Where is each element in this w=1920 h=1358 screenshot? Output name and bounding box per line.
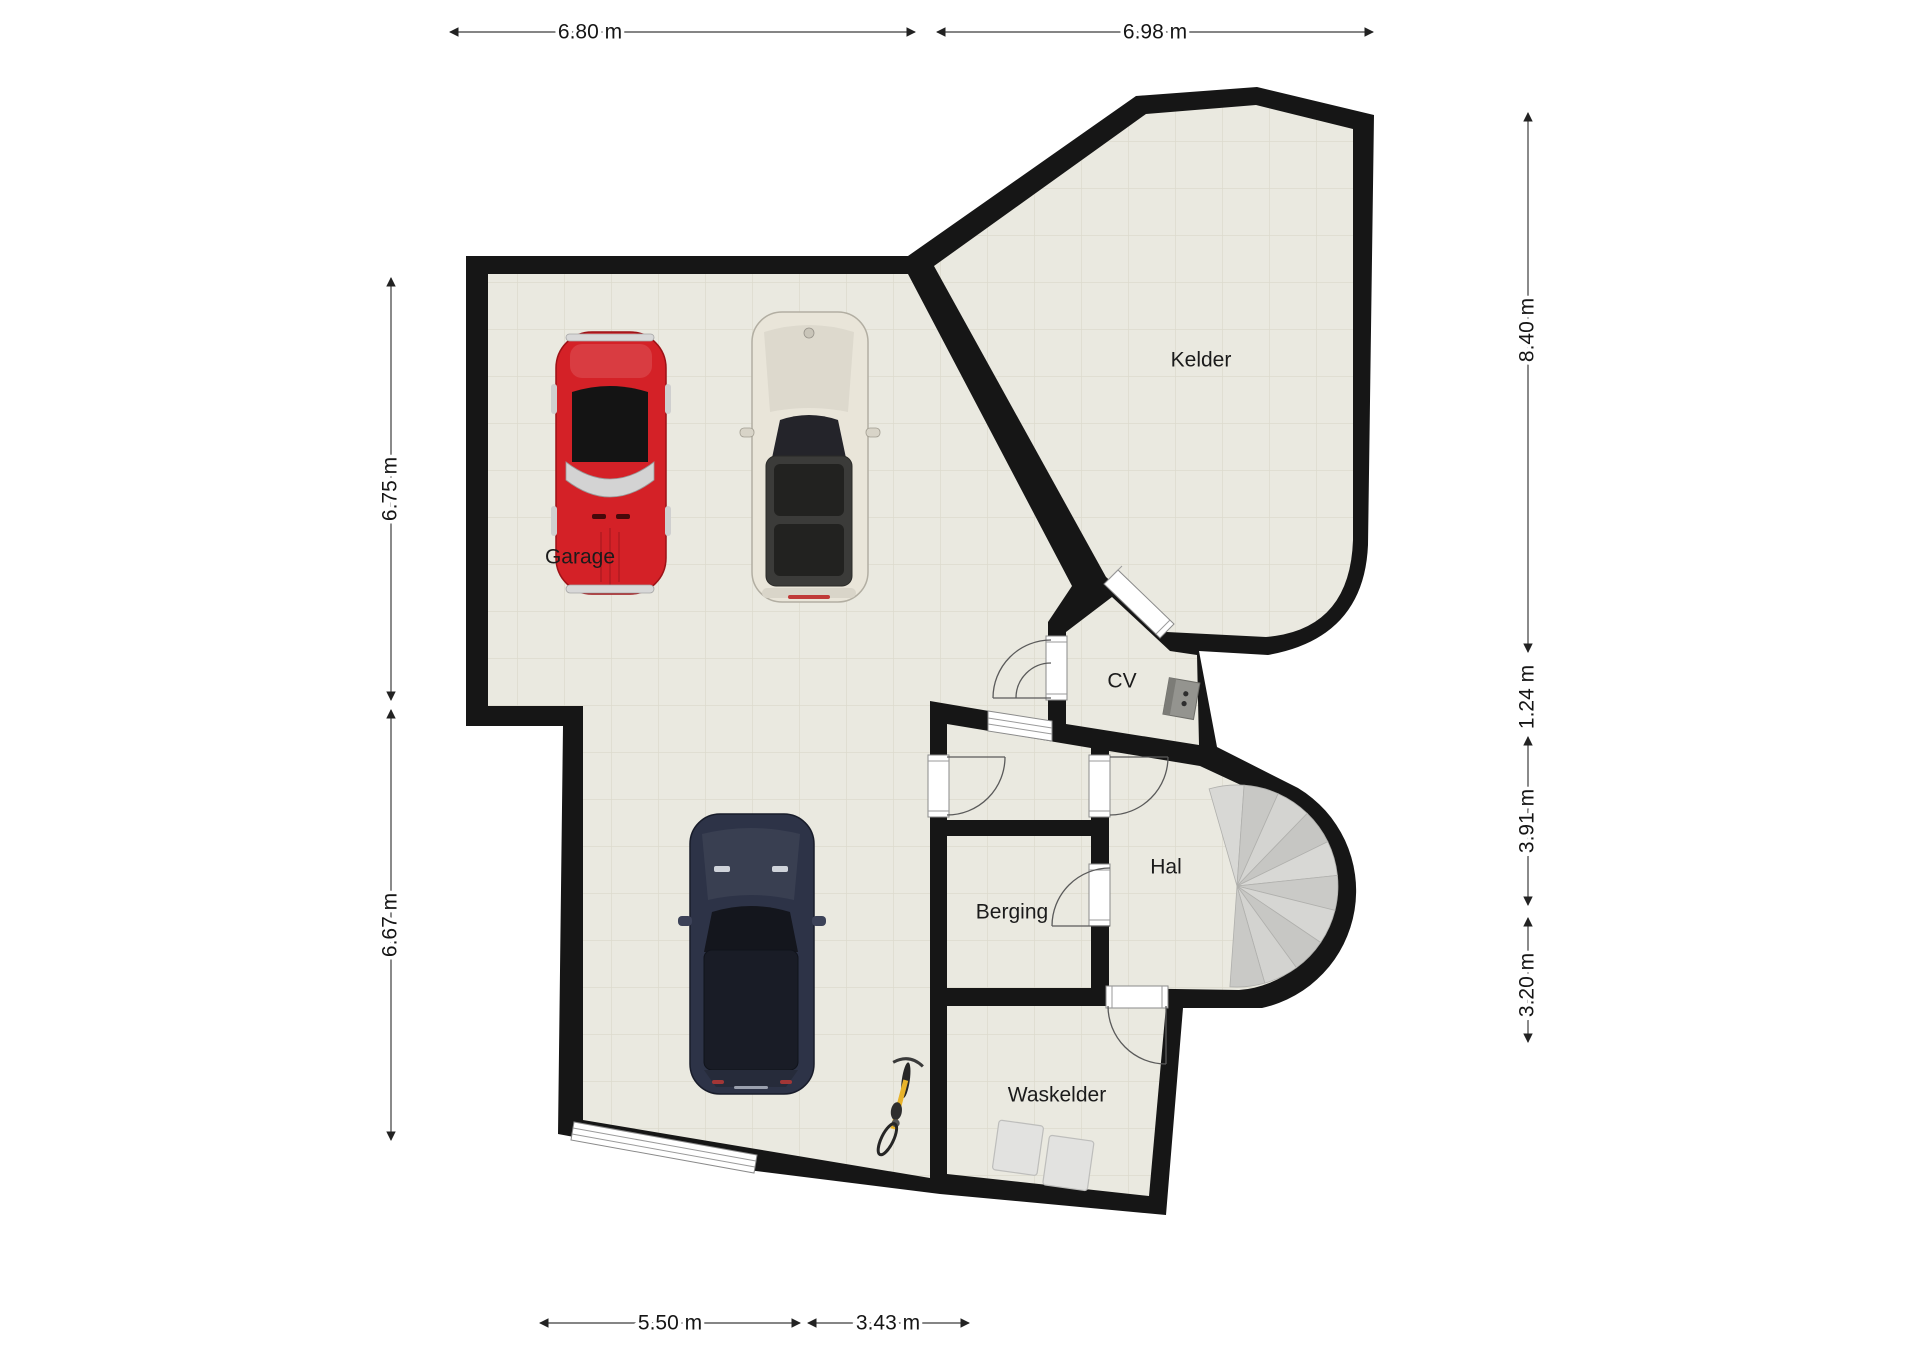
- dimension-right-3: 3.91 m: [1516, 737, 1539, 905]
- dimension-right-1: 8.40 m: [1516, 113, 1539, 652]
- svg-text:6.80 m: 6.80 m: [558, 21, 622, 44]
- dimension-right-2: 1.24 m: [1516, 665, 1539, 729]
- dimension-right-4: 3.20 m: [1516, 918, 1539, 1042]
- room-label-cv: CV: [1107, 670, 1136, 693]
- cv-boiler-icon: [1163, 678, 1200, 720]
- dimension-bottom-2: 3.43 m: [808, 1312, 969, 1335]
- svg-text:1.24 m: 1.24 m: [1516, 665, 1539, 729]
- dimension-top-1: 6.80 m: [450, 21, 915, 44]
- room-label-waskelder: Waskelder: [1008, 1084, 1106, 1107]
- floorplan-canvas: Garage Kelder CV Hal Berging Waskelder 6…: [0, 0, 1920, 1358]
- svg-text:3.20 m: 3.20 m: [1516, 953, 1539, 1017]
- svg-text:6.67 m: 6.67 m: [379, 893, 402, 957]
- dimension-top-2: 6.98 m: [937, 21, 1373, 44]
- svg-text:6.98 m: 6.98 m: [1123, 21, 1187, 44]
- svg-text:3.91 m: 3.91 m: [1516, 789, 1539, 853]
- dimension-bottom-1: 5.50 m: [540, 1312, 800, 1335]
- svg-text:8.40 m: 8.40 m: [1516, 298, 1539, 362]
- svg-text:3.43 m: 3.43 m: [856, 1312, 920, 1335]
- room-label-berging: Berging: [976, 901, 1048, 924]
- dimension-left-1: 6.75 m: [379, 278, 402, 700]
- compact-car-white-icon: [740, 312, 880, 602]
- room-label-kelder: Kelder: [1171, 349, 1232, 372]
- room-label-garage: Garage: [545, 546, 615, 569]
- svg-text:5.50 m: 5.50 m: [638, 1312, 702, 1335]
- dimension-left-2: 6.67 m: [379, 710, 402, 1140]
- room-label-hal: Hal: [1150, 856, 1182, 879]
- floorplan-page: Garage Kelder CV Hal Berging Waskelder 6…: [0, 0, 1920, 1358]
- svg-text:6.75 m: 6.75 m: [379, 457, 402, 521]
- suv-car-dark-icon: [678, 814, 826, 1094]
